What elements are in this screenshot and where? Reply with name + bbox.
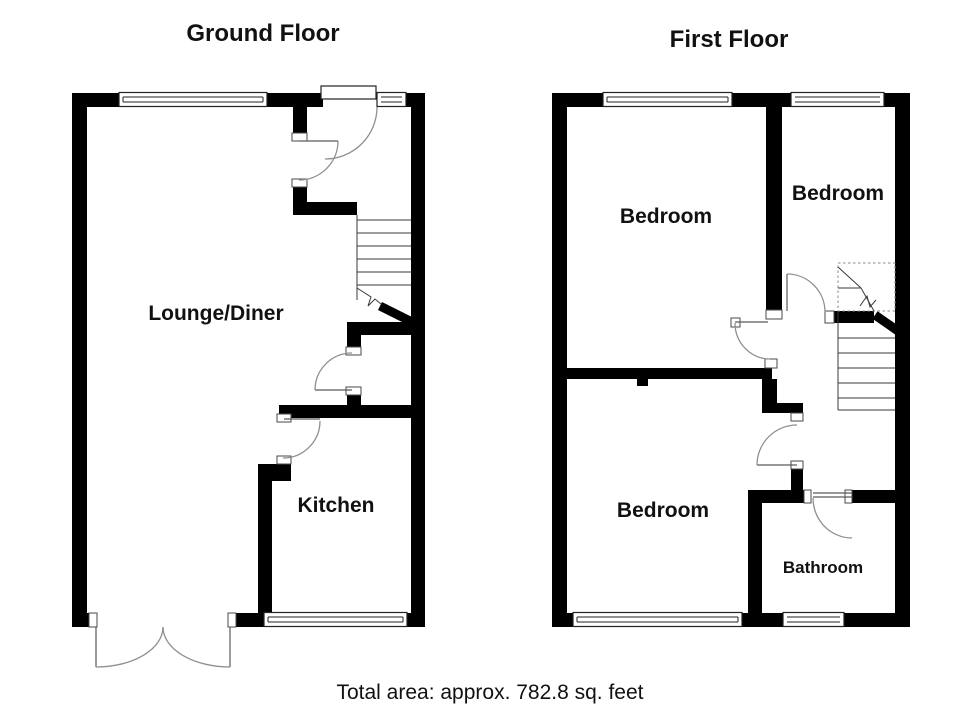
stair-winder-line: [838, 267, 861, 288]
wall-top-b: [732, 93, 791, 107]
floorplan-drawing: Ground Floor: [0, 0, 980, 712]
wall-top-a: [552, 93, 603, 107]
room-label-lounge: Lounge/Diner: [148, 302, 283, 325]
stair-bulkhead-dotted: [838, 263, 895, 311]
vestibule-door-swing-arc: [315, 353, 352, 390]
stair-top-wall: [300, 202, 357, 215]
stair-break-line: [357, 288, 381, 306]
stair-break-line: [860, 296, 876, 307]
hall-door: [292, 133, 338, 187]
wall-bottom-a: [552, 613, 573, 627]
bedroom-right-window: [791, 93, 884, 107]
wall-top-c: [406, 93, 425, 107]
bedroom-landing-wall: [567, 368, 772, 379]
bathroom-top-wall-right: [852, 490, 910, 503]
bedroom-bottom-door-arc: [757, 425, 797, 465]
kitchen-door: [277, 414, 320, 464]
first-floor-outer-walls: [552, 93, 910, 627]
hall-wall-upper: [293, 107, 307, 135]
first-floor-windows: [573, 93, 884, 627]
lounge-vestibule-door: [315, 347, 361, 395]
bathroom-window: [783, 613, 844, 627]
total-area-caption: Total area: approx. 782.8 sq. feet: [336, 681, 643, 704]
room-label-bedroom-bottom: Bedroom: [617, 499, 709, 522]
ground-floor-outer-walls: [72, 93, 425, 627]
first-floor-plan: First Floor: [552, 26, 910, 627]
stair-cut-wedge: [875, 315, 898, 331]
landing-jog-wall-h: [762, 403, 803, 413]
lounge-window: [119, 93, 267, 107]
bedroom-right-door-arc: [787, 274, 825, 312]
wall-stub-tick: [637, 379, 648, 386]
bedroom-bottom-door: [757, 413, 803, 469]
wall-left: [72, 93, 87, 627]
wall-right: [411, 93, 425, 627]
room-label-bathroom: Bathroom: [783, 558, 863, 577]
front-door-leaf: [321, 86, 376, 99]
wall-bottom-b: [232, 613, 264, 627]
ground-floor-plan: Ground Floor: [72, 20, 425, 667]
bathroom-door: [804, 490, 852, 538]
wall-bottom-c: [407, 613, 425, 627]
wall-bottom-b: [742, 613, 783, 627]
patio-door-left-arc: [96, 627, 163, 667]
wall-bottom-c: [844, 613, 910, 627]
bathroom-door-arc: [813, 498, 852, 538]
vestibule-wall-upper: [347, 335, 361, 348]
ground-floor-staircase: [357, 215, 416, 324]
bedroom-left-window: [603, 93, 732, 107]
front-door: [321, 86, 377, 159]
bedroom-bottom-window: [573, 613, 742, 627]
wall-top-c: [884, 93, 910, 107]
bedroom-left-door-arc: [735, 323, 770, 359]
bedroom-door-stub: [791, 469, 803, 491]
hall-door-swing-arc: [299, 141, 338, 180]
wall-top-a: [72, 93, 120, 107]
room-label-kitchen: Kitchen: [297, 494, 374, 517]
room-label-bedroom-left: Bedroom: [620, 205, 712, 228]
wall-top-b: [267, 93, 323, 107]
wall-right: [895, 93, 910, 627]
patio-door-right-arc: [163, 627, 230, 667]
wall-left: [552, 93, 567, 627]
first-floor-title: First Floor: [670, 26, 789, 53]
kitchen-window: [264, 613, 407, 627]
hall-window: [377, 93, 406, 107]
room-label-bedroom-right: Bedroom: [792, 182, 884, 205]
landing-top-wall: [833, 311, 874, 323]
front-door-swing-arc: [325, 107, 377, 159]
kitchen-door-swing-arc: [283, 421, 320, 458]
ground-floor-title: Ground Floor: [186, 20, 339, 47]
bathroom-left-wall: [748, 490, 762, 613]
ground-floor-doors: [89, 86, 377, 667]
patio-double-doors: [89, 613, 236, 667]
floorplan-page: Ground Floor: [0, 0, 980, 712]
kitchen-left-wall: [258, 464, 272, 613]
stair-cut-wedge: [380, 306, 416, 324]
bedroom-left-door: [731, 318, 777, 368]
bedroom-divider-wall: [766, 107, 782, 312]
first-floor-staircase: [838, 263, 898, 410]
ground-floor-interior-walls: [258, 107, 425, 613]
kitchen-top-wall: [279, 405, 425, 418]
